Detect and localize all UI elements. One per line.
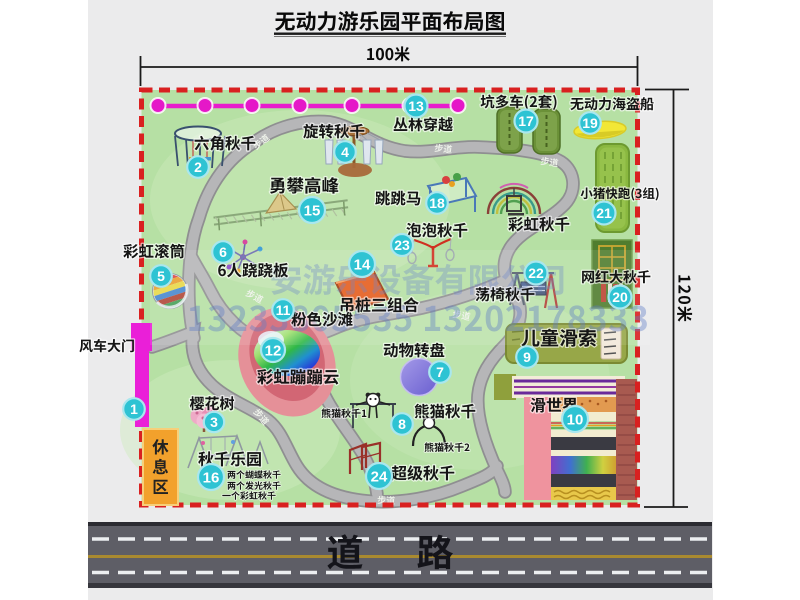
svg-text:3: 3 — [210, 414, 218, 430]
svg-text:11: 11 — [276, 302, 291, 318]
svg-text:9: 9 — [523, 349, 531, 365]
svg-text:10: 10 — [567, 411, 584, 428]
svg-text:2: 2 — [194, 159, 202, 175]
svg-text:12: 12 — [265, 342, 282, 359]
svg-text:1: 1 — [130, 401, 138, 417]
svg-text:14: 14 — [354, 256, 371, 273]
svg-text:6: 6 — [219, 244, 227, 260]
svg-text:21: 21 — [596, 205, 612, 221]
svg-text:22: 22 — [528, 265, 544, 281]
svg-text:23: 23 — [394, 237, 410, 253]
svg-text:17: 17 — [518, 113, 534, 129]
svg-text:8: 8 — [398, 416, 406, 432]
svg-text:18: 18 — [429, 195, 445, 211]
svg-text:16: 16 — [203, 469, 220, 486]
svg-text:20: 20 — [612, 289, 628, 305]
svg-text:24: 24 — [371, 468, 388, 485]
svg-text:7: 7 — [436, 364, 444, 380]
svg-text:5: 5 — [157, 268, 165, 284]
svg-text:13: 13 — [408, 98, 424, 114]
svg-text:15: 15 — [304, 202, 321, 219]
svg-text:4: 4 — [341, 144, 349, 160]
svg-text:19: 19 — [582, 115, 598, 131]
